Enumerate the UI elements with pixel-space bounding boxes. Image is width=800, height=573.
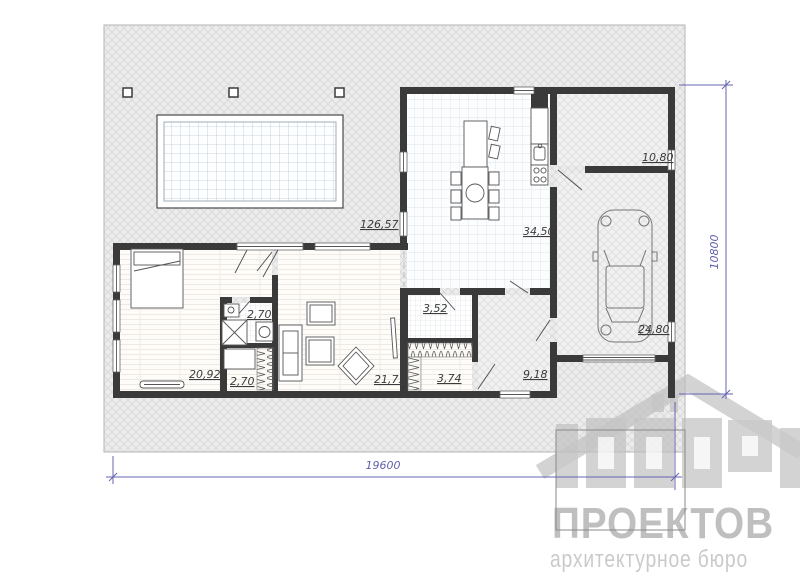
label-dressing: 3,74 [437,372,462,385]
dimension-width: 19600 [366,459,401,472]
label-terrace: 126,57 [360,218,399,231]
dresser [140,381,184,388]
label-bathroom-1: 2,70 [247,308,272,321]
window [113,340,120,372]
label-bedroom: 20,92 [189,368,221,381]
garage-door [583,355,655,362]
pool [157,115,343,208]
window [113,300,120,332]
label-garage: 24,80 [638,323,670,336]
sofa [279,325,302,381]
window [400,152,407,172]
armchair [307,302,335,325]
dining-table [451,167,499,220]
floor-plan-canvas: ПРОЕКТОВ архитектурное бюро [0,0,800,573]
terrace-door [237,243,303,250]
label-closet: 2,70 [230,375,255,388]
watermark-name: ПРОЕКТОВ [552,499,774,548]
watermark-tagline: архитектурное бюро [550,546,748,573]
kitchen-counter [531,94,548,185]
label-hall: 9,18 [523,368,548,381]
label-living: 21,75 [374,373,406,386]
window [500,391,530,398]
label-kitchen: 34,50 [523,225,555,238]
terrace-door [315,243,370,250]
bed [131,249,183,308]
dimension-height: 10800 [708,235,721,270]
dimension-right: 10800 [679,80,733,399]
floor-plan-drawing: ПРОЕКТОВ архитектурное бюро [0,0,800,573]
label-bathroom-2: 3,52 [423,302,448,315]
label-storage: 10,80 [642,151,674,164]
window [400,212,407,236]
window [113,265,120,292]
armchair [306,337,334,365]
window [514,87,534,94]
